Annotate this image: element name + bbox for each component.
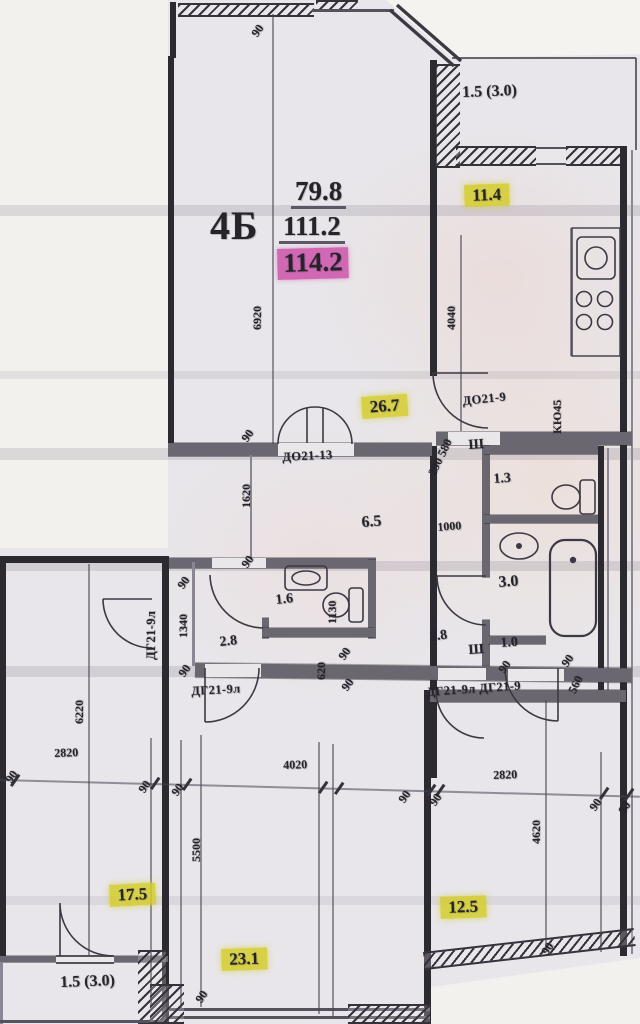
dimension: 4040 [445, 306, 457, 330]
dimension: 90 [239, 553, 256, 570]
door-label: ДГ21-9л [191, 682, 241, 697]
hall-area-value: 6.5 [361, 514, 382, 531]
dimension: 290 580 [426, 437, 454, 477]
dimension: 90 [176, 662, 193, 679]
dimension: 90 [496, 658, 513, 675]
dimension: 90 [336, 645, 353, 662]
dimension: 560 [566, 674, 585, 695]
dimension: 6220 [73, 700, 85, 724]
dimension: 90 [616, 799, 633, 816]
door-label: ДО21-13 [282, 448, 333, 463]
total-area-value: 114.2 [277, 247, 349, 280]
dimension: 5500 [190, 838, 202, 862]
dimension: 2820 [493, 768, 517, 781]
labels-layer: 4Б79.8111.2114.211.426.717.512.523.11.5 … [0, 0, 640, 1024]
dimension: 90 [587, 796, 604, 813]
dimension: 4020 [283, 758, 307, 771]
dimension: 1000 [437, 519, 462, 533]
dimension: 90 [136, 778, 153, 795]
kitchen-unit-label: КЮ45 [551, 400, 563, 434]
corridor-area-value: 3.8 [429, 629, 448, 645]
dimension: 1130 [326, 601, 338, 624]
closet-area-value: 1.0 [500, 636, 518, 651]
apartment-type-label: 4Б [210, 206, 258, 246]
dimension: 90 [3, 768, 20, 785]
dimension: 90 [193, 988, 210, 1005]
dimension: 90 [427, 791, 444, 808]
dimension: 4620 [530, 820, 542, 844]
door-label: ДГ21-9л ДГ21-9 [426, 679, 521, 698]
dimension: 90 [539, 940, 556, 957]
room-area-value: 17.5 [109, 883, 156, 907]
dimension: 6920 [251, 306, 263, 330]
closet-symbol: Ш [468, 643, 484, 658]
dimension: 90 [396, 788, 413, 805]
bath-area-value: 3.0 [498, 574, 519, 591]
dimension: 90 [559, 652, 576, 669]
door-label: ДГ21-9л [145, 611, 158, 660]
dimension: 2820 [54, 746, 78, 759]
dimension: 90 [249, 22, 266, 39]
dimension: 90 [169, 781, 186, 798]
dimension: 90 [339, 676, 356, 693]
dimension: 90 [239, 427, 256, 444]
room-area-value: 12.5 [440, 895, 486, 919]
wc-area-value: 1.3 [493, 472, 511, 487]
dimension: 620 [315, 662, 327, 680]
hall2-area-value: 2.8 [219, 634, 238, 650]
kitchen-area-value: 11.4 [464, 183, 510, 207]
living-area-value: 79.8 [291, 178, 346, 209]
balcony-area-value: 1.5 (3.0) [462, 83, 517, 101]
apartment-area-value: 111.2 [279, 213, 345, 244]
balcony-area-value: 1.5 (3.0) [60, 973, 115, 991]
dimension: 1620 [240, 484, 252, 508]
closet-symbol: Ш [468, 438, 484, 453]
door-label: ДО21-9 [462, 390, 507, 407]
dimension: 90 [175, 574, 192, 591]
dimension: 1340 [177, 614, 189, 638]
wc2-area-value: 1.6 [275, 592, 294, 608]
room-area-value: 23.1 [221, 947, 267, 971]
living-room-area-value: 26.7 [361, 394, 408, 419]
floorplan-photo: 4Б79.8111.2114.211.426.717.512.523.11.5 … [0, 0, 640, 1024]
